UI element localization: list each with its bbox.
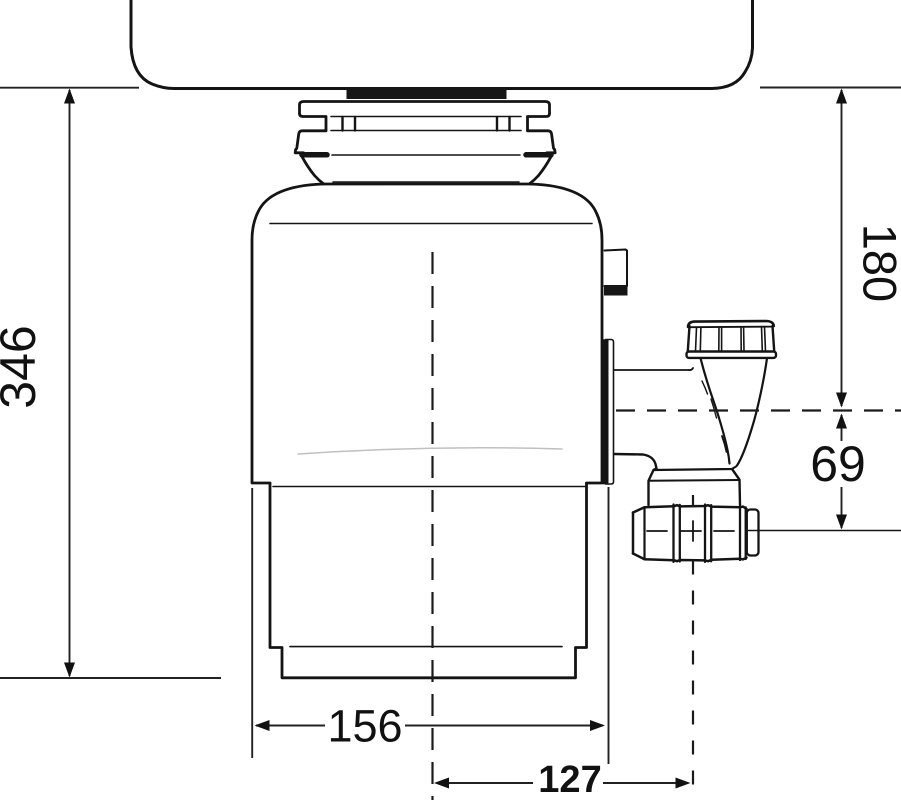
svg-text:156: 156 — [327, 701, 402, 752]
svg-text:346: 346 — [0, 325, 46, 408]
svg-text:180: 180 — [854, 224, 901, 302]
svg-text:127: 127 — [538, 759, 601, 800]
svg-text:69: 69 — [810, 436, 866, 492]
